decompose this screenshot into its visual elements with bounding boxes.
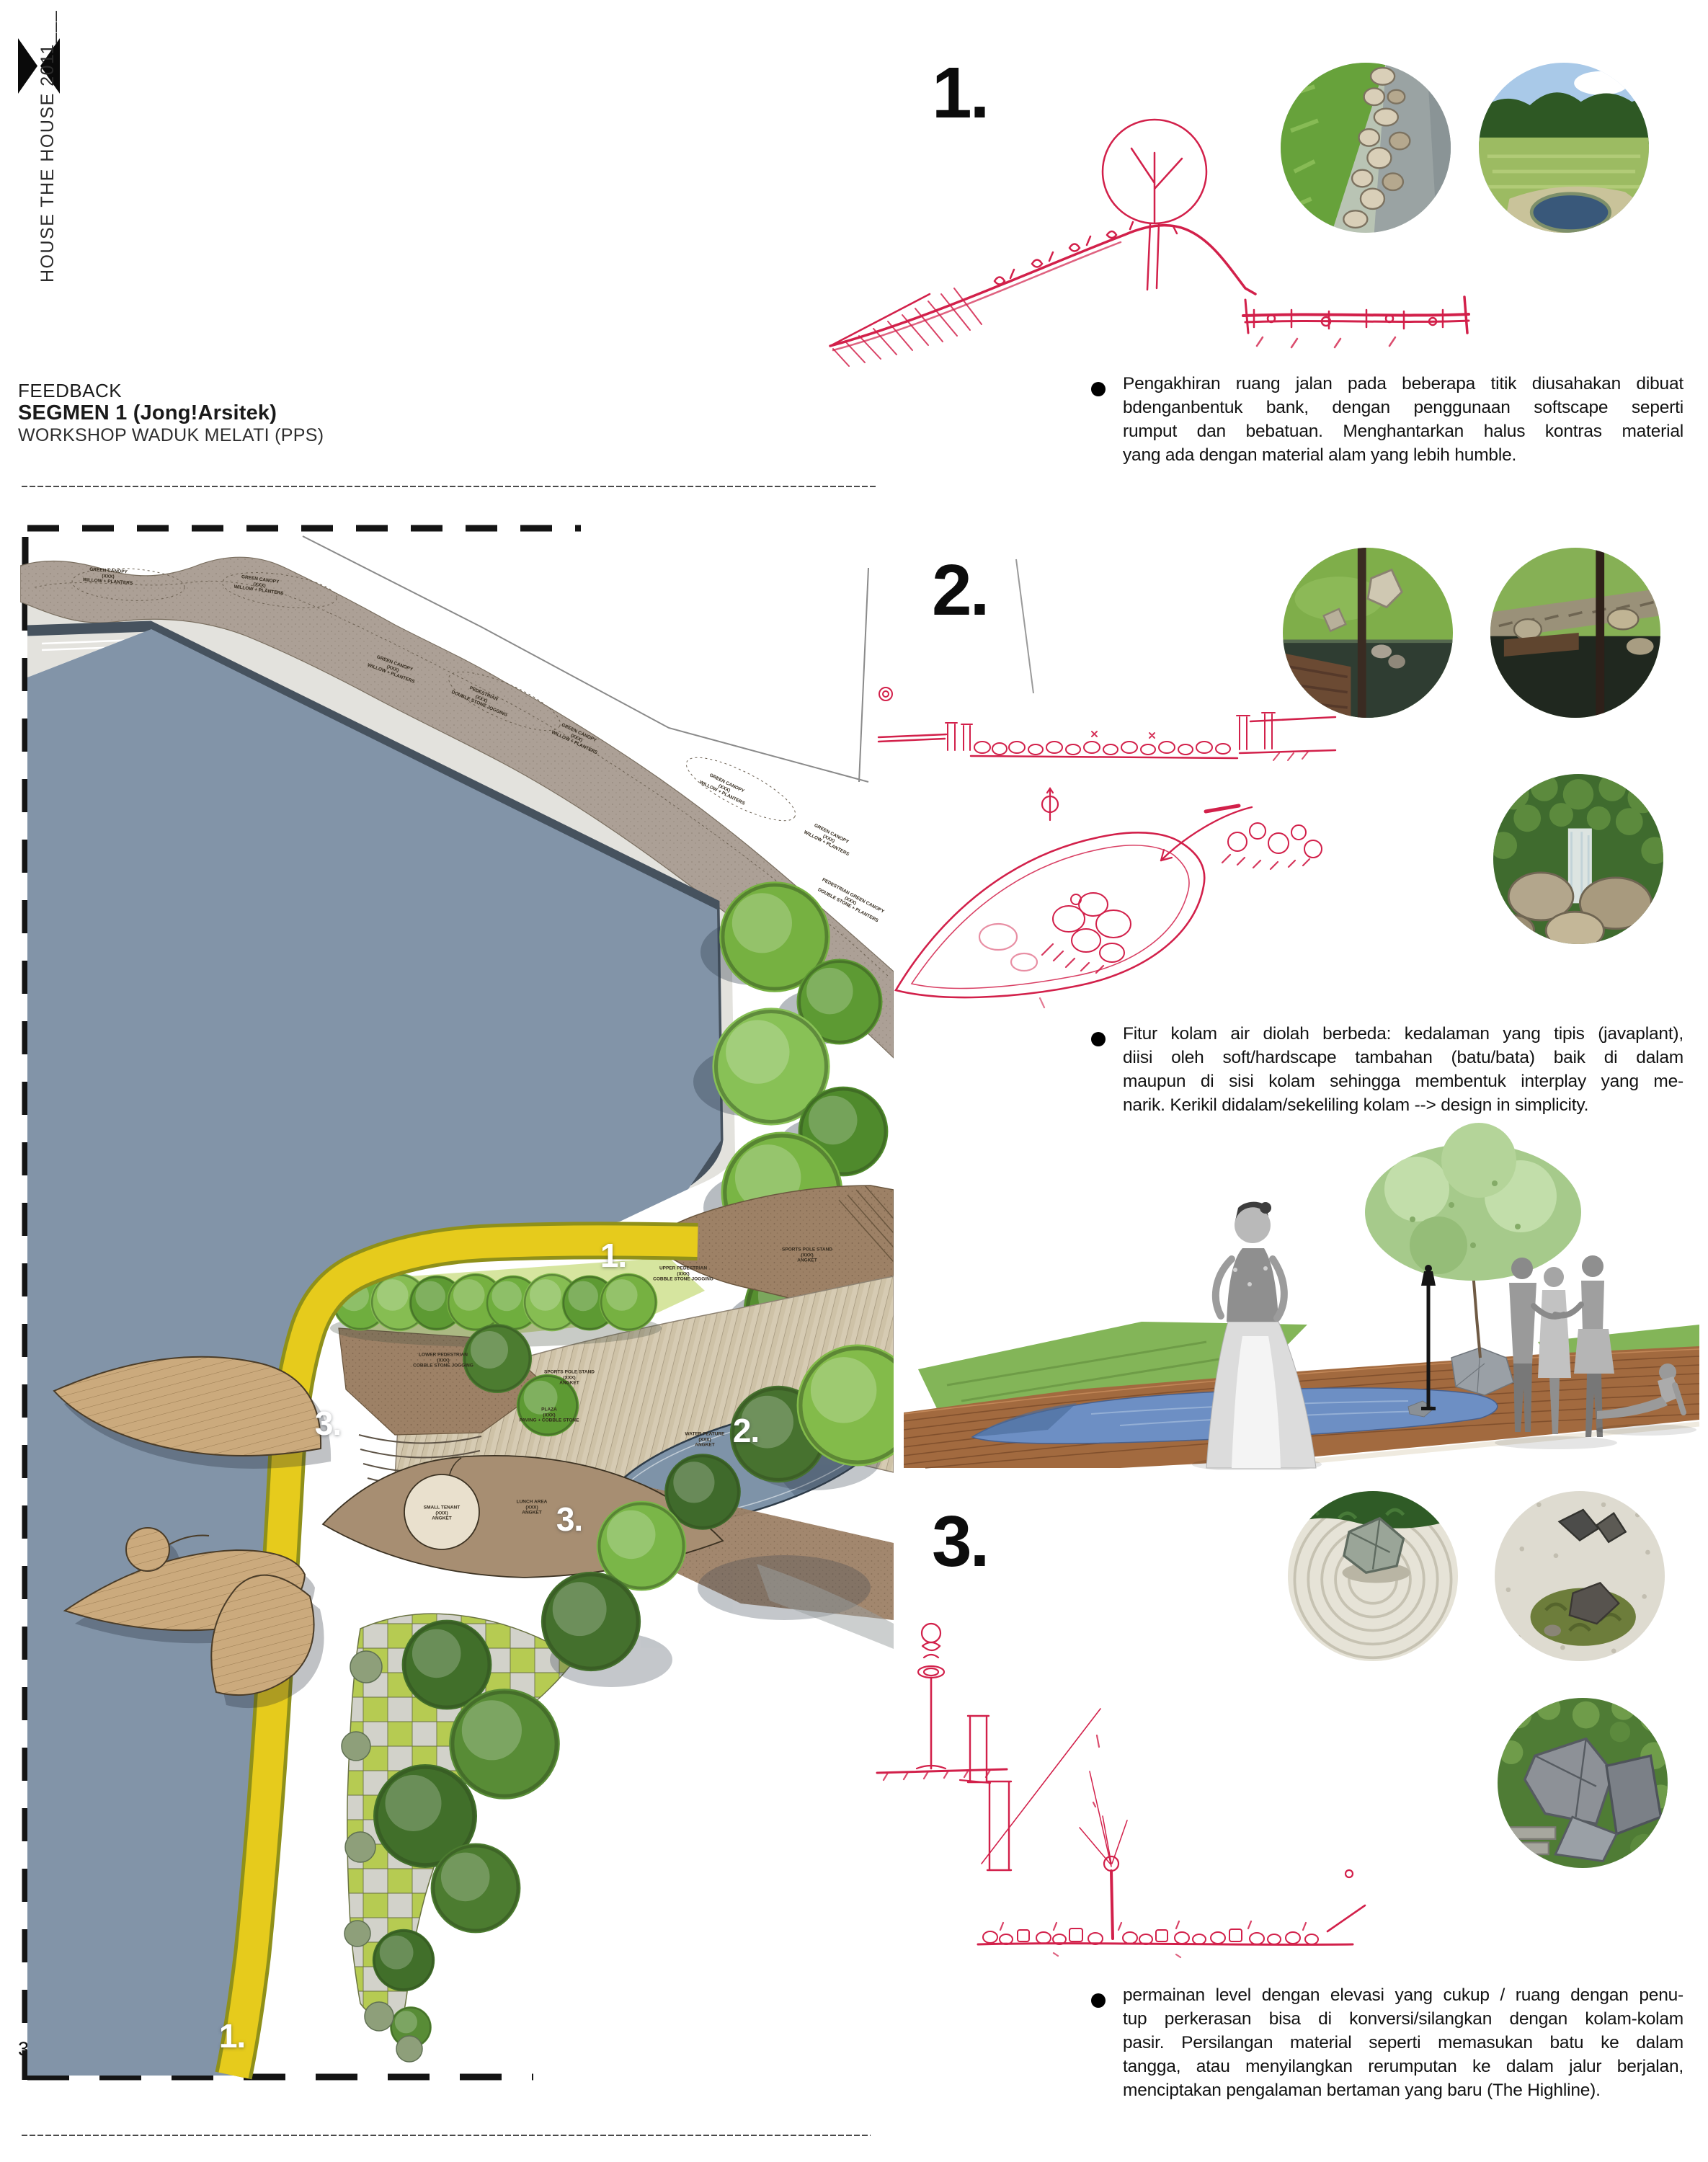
- plan-section-marker: 2.: [733, 1411, 759, 1450]
- plan-annotation-line: (XXX): [782, 1253, 832, 1258]
- plan-annotation-line: WATER FEATURE: [685, 1432, 724, 1438]
- plan-annotation-line: ANGKET: [517, 1511, 548, 1516]
- bullet-line: yang ada dengan material alam yang lebih…: [1123, 443, 1683, 467]
- plan-annotation-line: (XXX): [544, 1375, 595, 1381]
- red-sketch-eye-pond-plan: [883, 786, 1344, 1009]
- plan-annotation-line: (XXX): [685, 1437, 724, 1443]
- feedback-bullet-1: Pengakhiran ruang jalan pada beberapa ti…: [1123, 372, 1683, 467]
- plan-annotation-label: PLAZA(XXX)PAVING + COBBLE STONE: [520, 1407, 579, 1424]
- photo-stream-bank-riprap: [1281, 63, 1451, 233]
- title-block: FEEDBACK SEGMEN 1 (Jong!Arsitek) WORKSHO…: [18, 381, 324, 445]
- plan-section-marker: 1.: [219, 2016, 245, 2055]
- red-sketch-level-play: [873, 1620, 1385, 1959]
- bullet-line: maupun di sisi kolam sehingga membentuk …: [1123, 1069, 1683, 1093]
- photo-zen-gravel-moss: [1495, 1491, 1665, 1661]
- plan-annotation-line: ANGKET: [685, 1443, 724, 1449]
- plan-annotation-line: (XXX): [520, 1413, 579, 1418]
- bullet-line: diisi oleh soft/hardscape tambahan (batu…: [1123, 1046, 1683, 1069]
- plan-annotation-line: (XXX): [517, 1505, 548, 1511]
- plan-annotation-line: (XXX): [424, 1511, 460, 1516]
- plan-annotation-line: PAVING + COBBLE STONE: [520, 1418, 579, 1424]
- scan-stray-line: [1009, 555, 1041, 699]
- bullet-dot-3: [1091, 1993, 1106, 2008]
- vertical-event-title: HOUSE THE HOUSE 2011___: [37, 10, 58, 283]
- plan-section-marker: 3.: [315, 1404, 341, 1443]
- separator-line-top: [22, 486, 878, 487]
- photo-garden-stone-wall-pond: [1490, 548, 1660, 718]
- plan-annotation-label: SMALL TENANT(XXX)ANGKET: [424, 1505, 460, 1522]
- plan-annotation-line: ANGKET: [782, 1258, 832, 1264]
- bullet-line: tup perkerasan bisa di konversi/silangka…: [1123, 2007, 1683, 2031]
- photo-meadow-pond: [1479, 63, 1649, 233]
- plan-annotation-line: PLAZA: [520, 1407, 579, 1413]
- plan-annotation-line: ANGKET: [544, 1381, 595, 1387]
- plan-annotation-line: ANGKET: [424, 1516, 460, 1522]
- kicker-feedback: FEEDBACK: [18, 381, 324, 401]
- section-2-number: 2.: [932, 549, 987, 632]
- feedback-bullet-2: Fitur kolam air diolah berbeda: kedalama…: [1123, 1022, 1683, 1117]
- red-sketch-pond-section: [876, 681, 1337, 775]
- bullet-line: Pengakhiran ruang jalan pada beberapa ti…: [1123, 372, 1683, 396]
- plan-annotation-label: LUNCH AREA(XXX)ANGKET: [517, 1500, 548, 1516]
- bullet-line: pasir. Persilangan material seperti mema…: [1123, 2031, 1683, 2055]
- photo-boulders-steps: [1498, 1698, 1668, 1868]
- bullet-line: Fitur kolam air diolah berbeda: kedalama…: [1123, 1022, 1683, 1046]
- plan-annotation-label: GREEN CANOPY(XXX)WILLOW + PLANTERS: [83, 566, 134, 587]
- plan-annotation-label: WATER FEATURE(XXX)ANGKET: [685, 1432, 724, 1449]
- bullet-line: rumput dan bebatuan. Menghantarkan halus…: [1123, 419, 1683, 443]
- segment-title: SEGMEN 1 (Jong!Arsitek): [18, 401, 324, 424]
- bullet-line: menciptakan pengalaman bertaman yang bar…: [1123, 2078, 1683, 2102]
- site-boundary-line-2: [859, 568, 868, 782]
- plan-annotation-line: SPORTS POLE STAND: [782, 1247, 832, 1253]
- plan-annotation-label: UPPER PEDESTRIAN(XXX)COBBLE STONE JOGGIN…: [653, 1266, 713, 1283]
- plan-annotation-label: SPORTS POLE STAND(XXX)ANGKET: [544, 1370, 595, 1387]
- plan-section-marker: 3.: [556, 1500, 582, 1539]
- plan-annotation-line: LUNCH AREA: [517, 1500, 548, 1505]
- photo-waterfall-boulders: [1493, 774, 1663, 944]
- feedback-bullet-3: permainan level dengan elevasi yang cuku…: [1123, 1983, 1683, 2102]
- plan-annotation-line: SPORTS POLE STAND: [544, 1370, 595, 1376]
- plan-annotation-line: (XXX): [653, 1271, 713, 1277]
- plan-annotation-line: LOWER PEDESTRIAN: [413, 1353, 473, 1358]
- plan-annotation-label: SPORTS POLE STAND(XXX)ANGKET: [782, 1247, 832, 1264]
- plan-annotation-label: LOWER PEDESTRIAN(XXX)COBBLE STONE JOGGIN…: [413, 1353, 473, 1369]
- plan-section-marker: 1.: [600, 1236, 626, 1275]
- section-3-number: 3.: [932, 1500, 987, 1583]
- plan-annotation-line: SMALL TENANT: [424, 1505, 460, 1511]
- plan-annotation-line: (XXX): [413, 1358, 473, 1364]
- site-plan: [20, 521, 894, 2083]
- separator-line-bottom: [22, 2135, 871, 2136]
- workshop-subtitle: WORKSHOP WADUK MELATI (PPS): [18, 425, 324, 445]
- bullet-line: bdenganbentuk bank, dengan penggunaan so…: [1123, 396, 1683, 419]
- site-plan-drawing: [20, 521, 894, 2083]
- plan-annotation-line: UPPER PEDESTRIAN: [653, 1266, 713, 1272]
- bullet-dot-1: [1091, 382, 1106, 396]
- plan-annotation-line: COBBLE STONE JOGGING: [413, 1364, 473, 1369]
- bullet-line: permainan level dengan elevasi yang cuku…: [1123, 1983, 1683, 2007]
- plan-annotation-line: COBBLE STONE JOGGING: [653, 1277, 713, 1283]
- bullet-line: tangga, atau menyilangkan rerumputan ke …: [1123, 2055, 1683, 2078]
- perspective-render-pond-deck-people: [904, 1104, 1699, 1470]
- bullet-dot-2: [1091, 1032, 1106, 1046]
- presentation-sheet: HOUSE THE HOUSE 2011___ FEEDBACK SEGMEN …: [0, 0, 1708, 2162]
